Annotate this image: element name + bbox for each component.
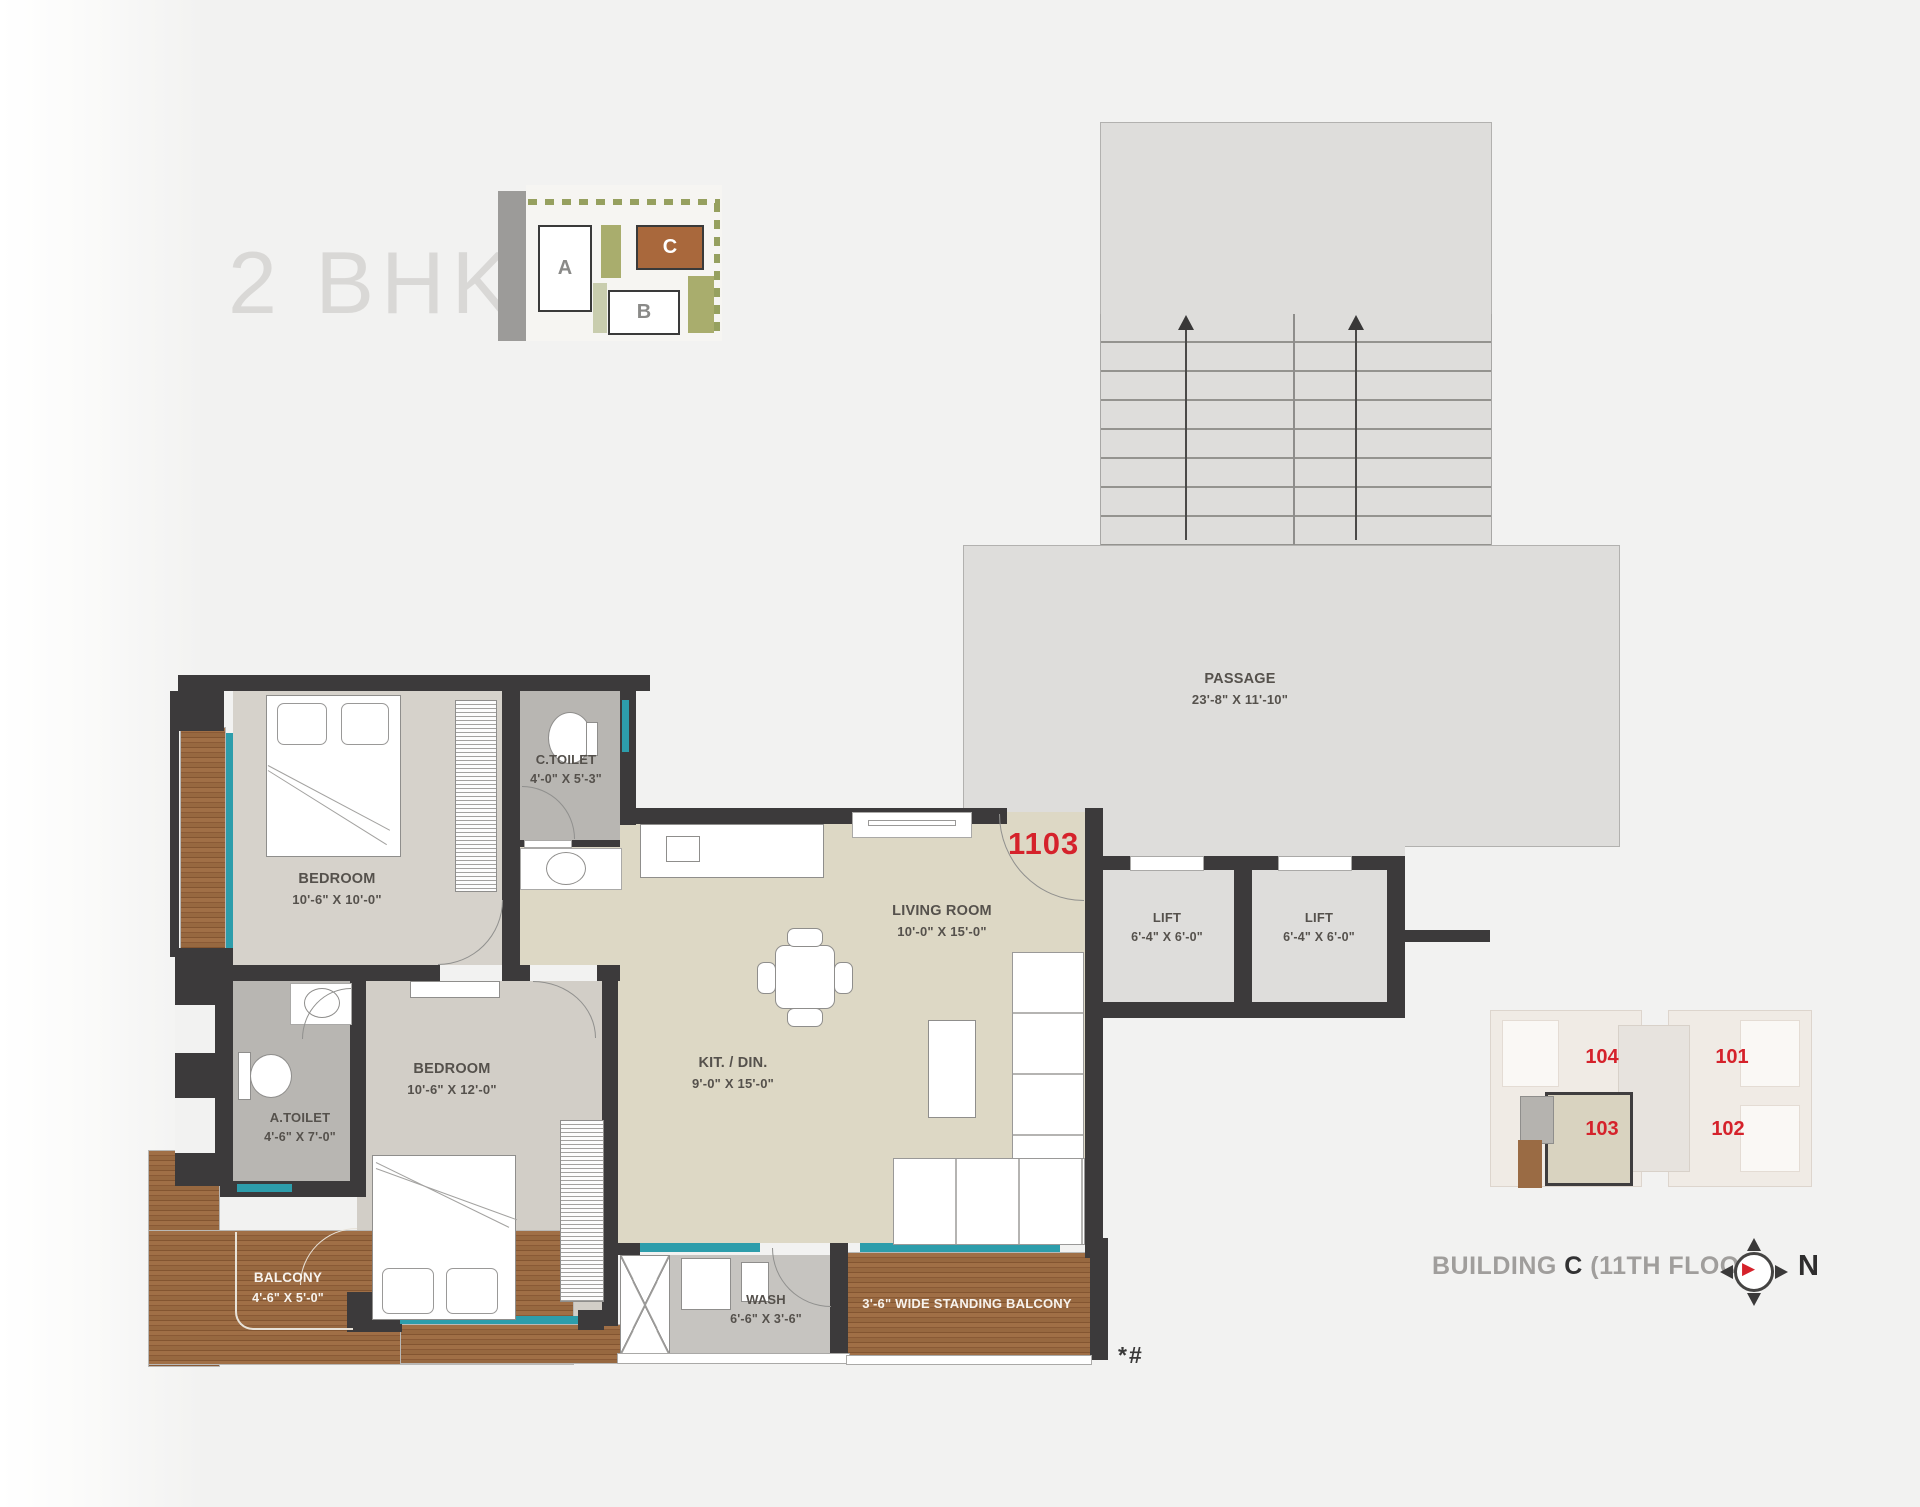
site-block-c-label: C xyxy=(663,236,677,259)
kitchen-sink xyxy=(666,836,700,862)
site-block-b: B xyxy=(608,290,680,335)
stair-arrow-up-line xyxy=(1185,330,1187,540)
wardrobe1 xyxy=(455,700,497,892)
site-green-2 xyxy=(688,276,714,333)
wall-top-bedroom1 xyxy=(178,675,650,691)
wall-atoilet-right xyxy=(350,965,366,1195)
compass-spike-e xyxy=(1775,1265,1788,1279)
keyplan-unit-103-toilet xyxy=(1520,1096,1554,1144)
dining-table xyxy=(775,945,835,1009)
keyplan-unit-103-balcony xyxy=(1518,1140,1542,1188)
room-label-wash: WASH 6'-6" X 3'-6" xyxy=(730,1290,802,1330)
site-tree-row xyxy=(528,199,720,205)
atoilet-dims: 4'-6" X 7'-0" xyxy=(264,1128,336,1147)
stair-arrow-dn-icon xyxy=(1348,315,1364,330)
sofa-horizontal xyxy=(893,1158,1085,1245)
flowerbed-strip xyxy=(180,727,226,959)
unit-number: 1103 xyxy=(1008,826,1079,862)
compass-spike-w xyxy=(1720,1265,1733,1279)
kitdin-dims: 9'-0" X 15'-0" xyxy=(692,1074,774,1094)
building-caption: BUILDING C (11TH FLOOR) xyxy=(1432,1252,1767,1281)
site-block-c: C xyxy=(636,225,704,270)
lift2-dims: 6'-4" X 6'-0" xyxy=(1283,928,1355,947)
passage-floor xyxy=(963,545,1620,847)
room-label-balcony: BALCONY 4'-6" X 5'-0" xyxy=(252,1268,324,1308)
wall-bedroom1-right xyxy=(502,675,520,965)
lift1-dims: 6'-4" X 6'-0" xyxy=(1131,928,1203,947)
lift2-name: LIFT xyxy=(1283,908,1355,928)
compass-spike-n xyxy=(1747,1238,1761,1251)
site-block-a: A xyxy=(538,225,592,312)
washbasin1 xyxy=(546,852,586,885)
wall-mid-a xyxy=(175,965,440,981)
ctoilet-window xyxy=(622,700,629,752)
lift-stub-wall xyxy=(1405,930,1490,942)
living-dims: 10'-0" X 15'-0" xyxy=(892,922,992,942)
wall-niche-1 xyxy=(175,1005,215,1053)
lift-bottom-wall xyxy=(1085,1002,1405,1018)
atoilet-window xyxy=(237,1184,292,1192)
lift1-door-sill xyxy=(1130,856,1204,871)
stair-landing xyxy=(1100,122,1492,316)
compass-arrow: ▶ xyxy=(1742,1260,1755,1278)
footnote: *# xyxy=(1118,1342,1144,1369)
room-label-lift1: LIFT 6'-4" X 6'-0" xyxy=(1131,908,1203,948)
ctoilet-door-sill xyxy=(524,840,572,848)
dining-chair-bottom xyxy=(787,1008,823,1027)
standing-balcony-label: 3'-6" WIDE STANDING BALCONY xyxy=(862,1294,1071,1314)
kitchen-window-bottom xyxy=(640,1243,760,1252)
caption-block: C xyxy=(1564,1252,1583,1280)
stair-divider xyxy=(1293,314,1295,545)
balcony-wood-under-bed xyxy=(400,1324,622,1364)
plan-title: 2 BHK xyxy=(228,232,517,334)
keyplan-label-102: 102 xyxy=(1711,1118,1744,1141)
kitdin-name: KIT. / DIN. xyxy=(692,1052,774,1074)
living-name: LIVING ROOM xyxy=(892,900,992,922)
lift-divider-wall xyxy=(1234,856,1252,1016)
keyplan-room-2 xyxy=(1740,1020,1800,1087)
bedroom1-name: BEDROOM xyxy=(292,868,381,890)
ctoilet-name: C.TOILET xyxy=(530,750,602,770)
room-label-atoilet: A.TOILET 4'-6" X 7'-0" xyxy=(264,1108,336,1148)
bedroom1-window xyxy=(226,733,233,951)
keyplan-label-103: 103 xyxy=(1585,1118,1618,1141)
site-block-b-label: B xyxy=(637,301,651,324)
bed2-pillow-1 xyxy=(382,1268,434,1314)
wall-corner-topleft xyxy=(178,675,224,731)
dining-chair-top xyxy=(787,928,823,947)
lift2-door-sill xyxy=(1278,856,1352,871)
room-label-bedroom1: BEDROOM 10'-6" X 10'-0" xyxy=(292,868,381,911)
wash-name: WASH xyxy=(730,1290,802,1310)
room-label-living: LIVING ROOM 10'-0" X 15'-0" xyxy=(892,900,992,943)
bed1-pillow-1 xyxy=(277,703,327,745)
wall-wash-right xyxy=(830,1243,848,1355)
washing-machine xyxy=(681,1258,731,1310)
keyplan-room-1 xyxy=(1502,1020,1559,1087)
balcony-dims: 4'-6" X 5'-0" xyxy=(252,1289,324,1308)
lift1-name: LIFT xyxy=(1131,908,1203,928)
wall-niche-2 xyxy=(175,1098,215,1153)
site-road xyxy=(498,191,526,341)
living-top-shelf xyxy=(868,820,956,826)
wall-mid-b xyxy=(502,965,530,981)
tv-unit xyxy=(928,1020,976,1118)
dining-chair-left xyxy=(757,962,776,994)
bedroom2-dresser xyxy=(410,981,500,998)
keyplan-room-3 xyxy=(1740,1105,1800,1172)
wall-left-thin xyxy=(170,691,179,957)
wall-wash-left-stub xyxy=(617,1243,640,1255)
keyplan-label-104: 104 xyxy=(1585,1046,1618,1069)
stair-arrow-dn-line xyxy=(1355,330,1357,540)
compass-icon: ▶ xyxy=(1722,1240,1786,1304)
wall-bedroom2-right xyxy=(602,981,618,1326)
stair-treads xyxy=(1100,314,1492,546)
bed2-pillow-2 xyxy=(446,1268,498,1314)
standing-balcony-sill xyxy=(846,1355,1092,1365)
room-label-kitdin: KIT. / DIN. 9'-0" X 15'-0" xyxy=(692,1052,774,1095)
atoilet-wc xyxy=(250,1054,292,1098)
site-map: A C B xyxy=(498,183,722,343)
site-tree-col xyxy=(714,203,720,333)
bedroom2-dims: 10'-6" X 12'-0" xyxy=(407,1080,496,1100)
site-green-1 xyxy=(601,225,621,278)
balcony-name: BALCONY xyxy=(252,1268,324,1289)
room-label-lift2: LIFT 6'-4" X 6'-0" xyxy=(1283,908,1355,948)
site-block-a-label: A xyxy=(558,257,572,280)
key-plan: 104 101 103 102 xyxy=(1490,1000,1812,1205)
caption-building: BUILDING xyxy=(1432,1252,1564,1280)
dining-chair-right xyxy=(834,962,853,994)
room-label-ctoilet: C.TOILET 4'-0" X 5'-3" xyxy=(530,750,602,790)
wall-bedroom2-bottom-right xyxy=(578,1310,604,1330)
bed1-pillow-2 xyxy=(341,703,389,745)
wardrobe2 xyxy=(560,1120,604,1302)
wall-standing-balcony-right xyxy=(1090,1238,1108,1360)
passage-name: PASSAGE xyxy=(1192,668,1288,690)
passage-dims: 23'-8" X 11'-10" xyxy=(1192,690,1288,710)
room-label-bedroom2: BEDROOM 10'-6" X 12'-0" xyxy=(407,1058,496,1101)
atoilet-name: A.TOILET xyxy=(264,1108,336,1128)
wall-mid-c xyxy=(597,965,620,981)
bedroom1-dims: 10'-6" X 10'-0" xyxy=(292,890,381,910)
ctoilet-dims: 4'-0" X 5'-3" xyxy=(530,770,602,789)
lift-right-wall xyxy=(1387,856,1405,1016)
stair-arrow-up-icon xyxy=(1178,315,1194,330)
keyplan-label-101: 101 xyxy=(1715,1046,1748,1069)
north-label: N xyxy=(1798,1250,1819,1283)
duct-box xyxy=(620,1255,670,1355)
site-green-3 xyxy=(593,283,607,333)
bedroom2-name: BEDROOM xyxy=(407,1058,496,1080)
wash-dims: 6'-6" X 3'-6" xyxy=(730,1310,802,1329)
room-label-passage: PASSAGE 23'-8" X 11'-10" xyxy=(1192,668,1288,711)
compass-spike-s xyxy=(1747,1293,1761,1306)
wash-bottom-sill xyxy=(617,1353,850,1364)
wall-living-right xyxy=(1085,808,1103,1258)
